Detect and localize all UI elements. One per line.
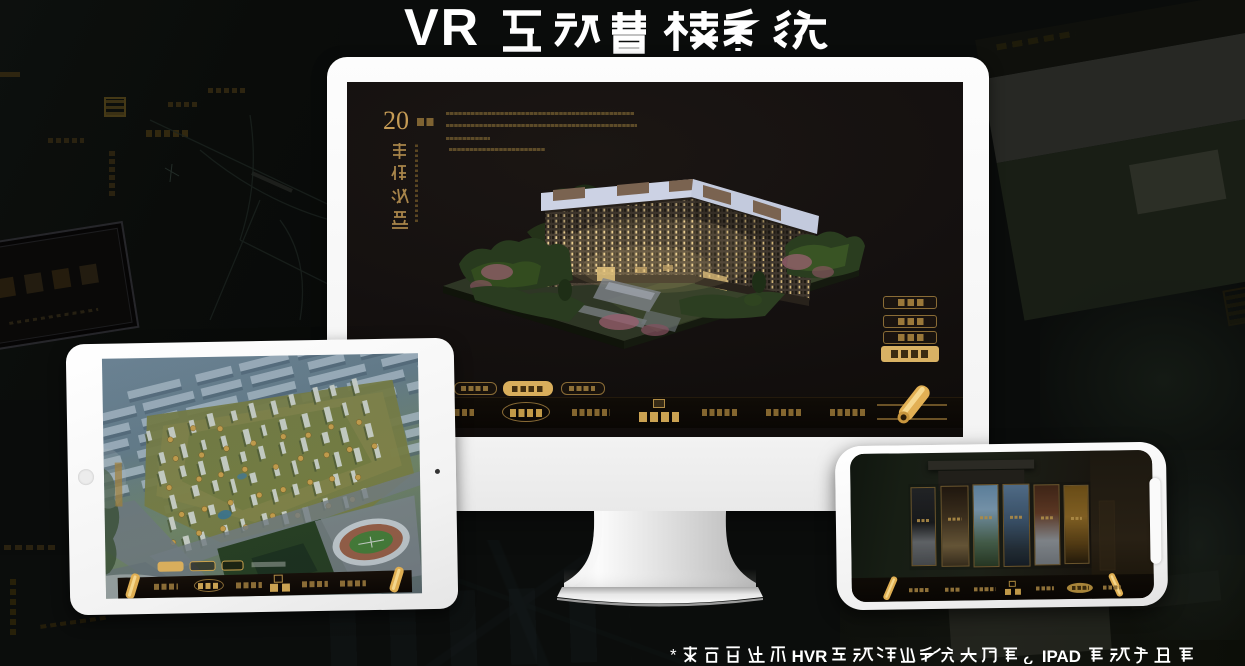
svg-text:HVR: HVR [792,647,828,664]
svg-text:*: * [670,646,677,664]
svg-text:IPAD: IPAD [1042,647,1081,664]
